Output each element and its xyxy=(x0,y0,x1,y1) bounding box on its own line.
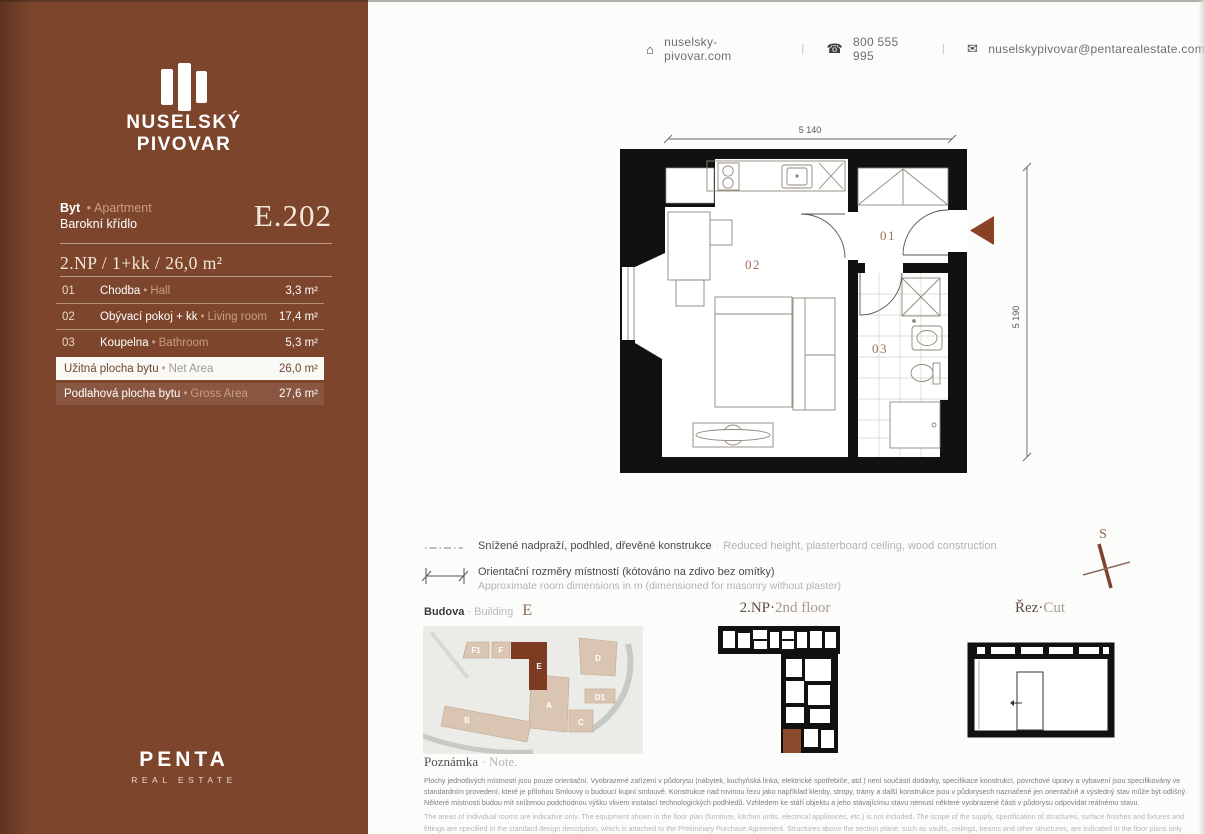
legend2-en: Approximate room dimensions in m (dimens… xyxy=(478,580,841,592)
legend1-en: Reduced height, plasterboard ceiling, wo… xyxy=(723,540,996,552)
scan-edge-right xyxy=(1198,0,1205,834)
site-label-e: E xyxy=(536,662,542,671)
logo-bar-left xyxy=(161,69,173,105)
phone-icon: ☎ xyxy=(827,41,844,57)
bullet-icon: • xyxy=(159,363,169,375)
website-link[interactable]: nuselsky-pivovar.com xyxy=(664,35,779,63)
room-label-03: 03 xyxy=(872,341,888,356)
bullet-icon: • xyxy=(180,388,190,400)
unit-location-highlight xyxy=(783,729,801,753)
room-name-cz: Chodba xyxy=(100,285,140,297)
room-number: 02 xyxy=(56,311,100,323)
unit-header: Byt •Apartment Barokní křídlo E.202 xyxy=(60,201,332,232)
section-drawing xyxy=(965,640,1117,740)
brochure-page: NUSELSKÝ PIVOVAR Byt •Apartment Barokní … xyxy=(0,0,1205,834)
room-name-en: Living room xyxy=(208,311,267,323)
brand-line2: PIVOVAR xyxy=(0,134,368,156)
bullet-icon: • xyxy=(197,311,207,323)
unit-type-cz: Byt xyxy=(60,201,80,215)
gross-area-row: Podlahová plocha bytu•Gross Area 27,6 m² xyxy=(56,383,324,405)
divider: | xyxy=(801,43,804,55)
note-text-en: The areas of individual rooms are indica… xyxy=(424,811,1190,834)
floor-label-cz: 2.NP xyxy=(740,600,770,616)
site-label-b: B xyxy=(464,716,470,725)
floor-heading: 2.NP·2nd floor xyxy=(700,600,870,617)
sidebar: NUSELSKÝ PIVOVAR Byt •Apartment Barokní … xyxy=(0,0,368,834)
note-title-cz: Poznámka xyxy=(424,754,478,769)
scan-edge-top xyxy=(0,0,1205,2)
cut-heading: Řez·Cut xyxy=(960,600,1120,617)
table-row: 02 Obývací pokoj + kk•Living room 17,4 m… xyxy=(56,304,324,330)
contact-header: ⌂ nuselsky-pivovar.com | ☎ 800 555 995 |… xyxy=(646,35,1205,63)
dimension-top xyxy=(664,135,956,143)
note-title-en: Note. xyxy=(489,754,518,769)
site-label-d1: D1 xyxy=(595,693,606,702)
room-name-cz: Koupelna xyxy=(100,337,149,349)
section-windows xyxy=(977,647,1109,654)
divider-line xyxy=(60,243,332,244)
room-name-cz: Obývací pokoj + kk xyxy=(100,311,197,323)
site-label-d: D xyxy=(595,654,601,663)
gross-area-value: 27,6 m² xyxy=(279,388,324,400)
brand-name: NUSELSKÝ PIVOVAR xyxy=(0,112,368,157)
building-label-en: Building xyxy=(474,606,513,618)
dimension-line-icon xyxy=(422,564,468,588)
room-label-02: 02 xyxy=(745,257,761,272)
legend1-cz: Snížené nadpraží, podhled, dřevěné konst… xyxy=(478,540,712,552)
logo-bar-right xyxy=(196,71,207,103)
table-row: 03 Koupelna•Bathroom 5,3 m² xyxy=(56,330,324,355)
home-icon: ⌂ xyxy=(646,42,654,57)
room-area: 17,4 m² xyxy=(279,311,324,323)
bullet-icon: • xyxy=(84,201,94,215)
entrance-arrow-icon xyxy=(970,216,994,245)
note-section: Poznámka · Note. Plochy jednotlivých mís… xyxy=(424,754,1190,834)
room-table: 01 Chodba•Hall 3,3 m² 02 Obývací pokoj +… xyxy=(56,278,324,405)
penta-name: PENTA xyxy=(0,748,368,772)
room-area: 3,3 m² xyxy=(285,285,324,297)
compass-north-label: S xyxy=(1099,527,1107,542)
dimension-top-label: 5 140 xyxy=(799,125,822,135)
unit-code: E.202 xyxy=(254,198,332,234)
dashed-line-icon xyxy=(424,542,464,554)
site-map: F1 F E D D1 A C B xyxy=(423,626,643,754)
brewery-logo-icon xyxy=(0,62,368,112)
note-text-cz: Plochy jednotlivých místností jsou pouze… xyxy=(424,775,1190,808)
penta-subtitle: REAL ESTATE xyxy=(0,775,368,785)
dot-separator: · xyxy=(481,754,485,769)
unit-type-en: Apartment xyxy=(94,201,152,215)
penta-logo: PENTA REAL ESTATE xyxy=(0,748,368,785)
shower-tray xyxy=(890,402,940,448)
cut-label-cz: Řez xyxy=(1015,600,1038,616)
dimension-right-label: 5 190 xyxy=(1011,306,1021,329)
dot-separator: · xyxy=(712,540,724,552)
window xyxy=(622,267,640,340)
site-label-f: F xyxy=(499,646,504,655)
envelope-icon: ✉ xyxy=(967,41,978,57)
phone-link[interactable]: 800 555 995 xyxy=(853,35,920,63)
section-door xyxy=(1017,672,1043,730)
room-number: 03 xyxy=(56,337,100,349)
dimension-right xyxy=(1023,163,1031,461)
legend-row-2: Orientační rozměry místností (kótováno n… xyxy=(478,566,841,592)
floorplan-drawing: 5 140 5 190 xyxy=(612,112,1044,512)
room-label-01: 01 xyxy=(880,228,896,243)
room-number: 01 xyxy=(56,285,100,297)
logo-bar-center xyxy=(178,63,191,111)
dot-separator: · xyxy=(467,606,471,618)
legend2-cz: Orientační rozměry místností (kótováno n… xyxy=(478,566,775,578)
building-value: E xyxy=(522,602,532,619)
divider-line xyxy=(60,276,332,277)
compass-icon: S xyxy=(1078,518,1138,598)
bullet-icon: • xyxy=(149,337,159,349)
net-label-cz: Užitná plocha bytu xyxy=(64,363,159,375)
cut-label-en: Cut xyxy=(1043,600,1065,616)
site-label-c: C xyxy=(578,718,584,727)
site-label-f1: F1 xyxy=(471,646,481,655)
room-area: 5,3 m² xyxy=(285,337,324,349)
floor-label-en: 2nd floor xyxy=(775,600,830,616)
table-row: 01 Chodba•Hall 3,3 m² xyxy=(56,278,324,304)
brand-line1: NUSELSKÝ xyxy=(0,112,368,134)
divider: | xyxy=(942,43,945,55)
building-heading: Budova · Building E xyxy=(424,602,532,620)
room-name-en: Hall xyxy=(150,285,170,297)
gross-label-en: Gross Area xyxy=(190,388,248,400)
net-label-en: Net Area xyxy=(169,363,214,375)
floor-key-plan xyxy=(718,626,843,758)
site-label-a: A xyxy=(546,701,552,710)
unit-summary: 2.NP / 1+kk / 26,0 m² xyxy=(60,253,332,274)
net-area-value: 26,0 m² xyxy=(279,363,324,375)
net-area-row: Užitná plocha bytu•Net Area 26,0 m² xyxy=(56,357,324,380)
note-title: Poznámka · Note. xyxy=(424,754,1190,770)
email-link[interactable]: nuselskypivovar@pentarealestate.com xyxy=(988,42,1205,56)
legend-row-1: Snížené nadpraží, podhled, dřevěné konst… xyxy=(478,540,997,552)
gross-label-cz: Podlahová plocha bytu xyxy=(64,388,180,400)
bullet-icon: • xyxy=(140,285,150,297)
room-name-en: Bathroom xyxy=(159,337,209,349)
building-label-cz: Budova xyxy=(424,606,464,618)
